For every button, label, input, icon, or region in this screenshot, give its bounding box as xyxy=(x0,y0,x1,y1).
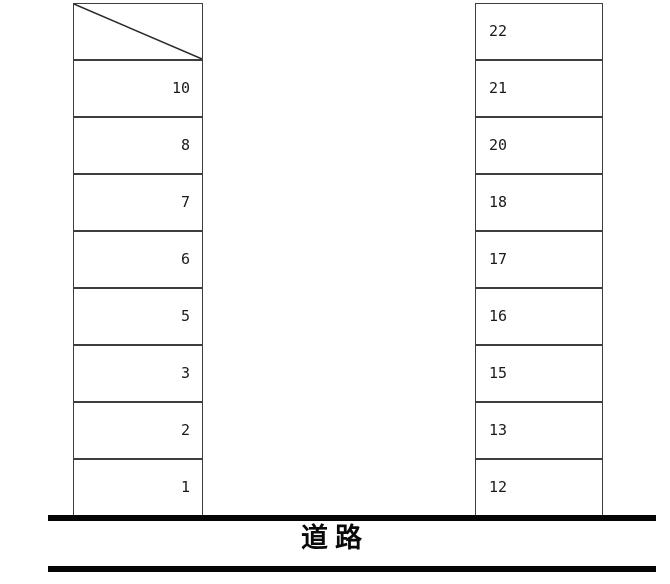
parking-space-cell: 5 xyxy=(73,288,203,345)
parking-space-cell: 16 xyxy=(475,288,603,345)
parking-space-cell: 22 xyxy=(475,3,603,60)
space-number: 6 xyxy=(181,252,202,267)
space-number: 21 xyxy=(476,81,507,96)
parking-space-cell: 13 xyxy=(475,402,603,459)
space-number: 16 xyxy=(476,309,507,324)
space-number: 20 xyxy=(476,138,507,153)
parking-space-cell: 12 xyxy=(475,459,603,516)
parking-space-cell: 3 xyxy=(73,345,203,402)
diagonal-line xyxy=(74,4,202,59)
parking-space-cell: 1 xyxy=(73,459,203,516)
space-number: 22 xyxy=(476,24,507,39)
space-number: 7 xyxy=(181,195,202,210)
space-number: 15 xyxy=(476,366,507,381)
parking-space-cell: 17 xyxy=(475,231,603,288)
space-number: 1 xyxy=(181,480,202,495)
parking-layout-diagram: 10 8 7 6 5 3 2 1 22 21 20 xyxy=(0,0,670,584)
space-number: 17 xyxy=(476,252,507,267)
parking-space-cell-blank xyxy=(73,3,203,60)
space-number: 13 xyxy=(476,423,507,438)
space-number: 5 xyxy=(181,309,202,324)
space-number: 10 xyxy=(172,81,202,96)
road-edge-line-top xyxy=(48,515,656,521)
parking-space-cell: 6 xyxy=(73,231,203,288)
parking-space-cell: 8 xyxy=(73,117,203,174)
parking-space-cell: 15 xyxy=(475,345,603,402)
parking-space-cell: 20 xyxy=(475,117,603,174)
parking-space-cell: 10 xyxy=(73,60,203,117)
road-label: 道路 xyxy=(0,524,670,554)
space-number: 12 xyxy=(476,480,507,495)
parking-space-cell: 18 xyxy=(475,174,603,231)
space-number: 18 xyxy=(476,195,507,210)
parking-column-right: 22 21 20 18 17 16 15 13 12 xyxy=(475,3,603,516)
parking-space-cell: 7 xyxy=(73,174,203,231)
parking-space-cell: 2 xyxy=(73,402,203,459)
parking-column-left: 10 8 7 6 5 3 2 1 xyxy=(73,3,203,516)
parking-space-cell: 21 xyxy=(475,60,603,117)
space-number: 8 xyxy=(181,138,202,153)
road-edge-line-bottom xyxy=(48,566,656,572)
space-number: 3 xyxy=(181,366,202,381)
space-number: 2 xyxy=(181,423,202,438)
